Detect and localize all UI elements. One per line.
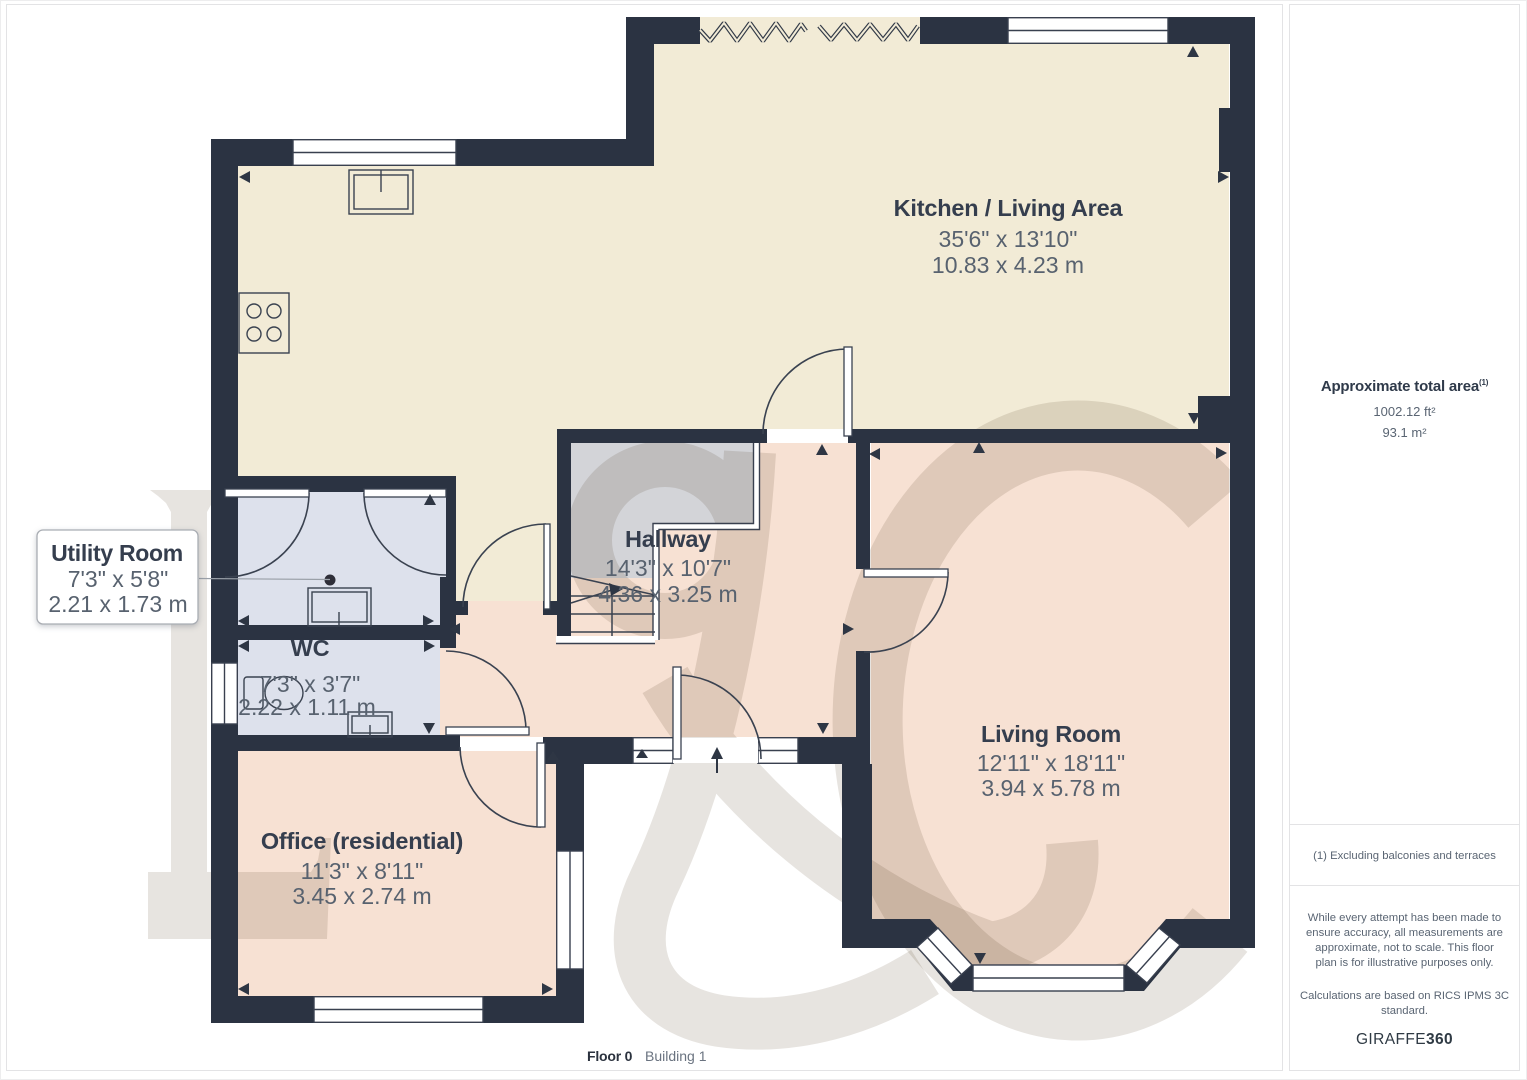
svg-text:7'3" x 5'8": 7'3" x 5'8" — [68, 566, 169, 592]
svg-text:3.45 x 2.74 m: 3.45 x 2.74 m — [292, 883, 431, 909]
svg-text:Office (residential): Office (residential) — [261, 828, 463, 854]
svg-text:10.83 x 4.23 m: 10.83 x 4.23 m — [932, 252, 1084, 278]
svg-text:2.22 x 1.11 m: 2.22 x 1.11 m — [238, 694, 376, 720]
svg-text:WC: WC — [291, 635, 330, 661]
svg-text:35'6" x 13'10": 35'6" x 13'10" — [939, 226, 1078, 252]
svg-text:2.21 x 1.73 m: 2.21 x 1.73 m — [48, 591, 187, 617]
svg-text:Hallway: Hallway — [625, 526, 711, 552]
svg-text:14'3" x 10'7": 14'3" x 10'7" — [605, 555, 731, 581]
svg-text:Kitchen / Living Area: Kitchen / Living Area — [894, 195, 1124, 221]
svg-text:11'3" x 8'11": 11'3" x 8'11" — [301, 858, 424, 884]
svg-text:Living Room: Living Room — [981, 721, 1121, 747]
svg-text:12'11" x 18'11": 12'11" x 18'11" — [977, 750, 1125, 776]
svg-text:3.94 x 5.78 m: 3.94 x 5.78 m — [981, 775, 1120, 801]
svg-text:Utility Room: Utility Room — [51, 540, 183, 566]
svg-text:Building 1: Building 1 — [645, 1048, 707, 1064]
svg-text:4.36 x 3.25 m: 4.36 x 3.25 m — [598, 581, 737, 607]
svg-text:Floor 0: Floor 0 — [587, 1048, 633, 1064]
